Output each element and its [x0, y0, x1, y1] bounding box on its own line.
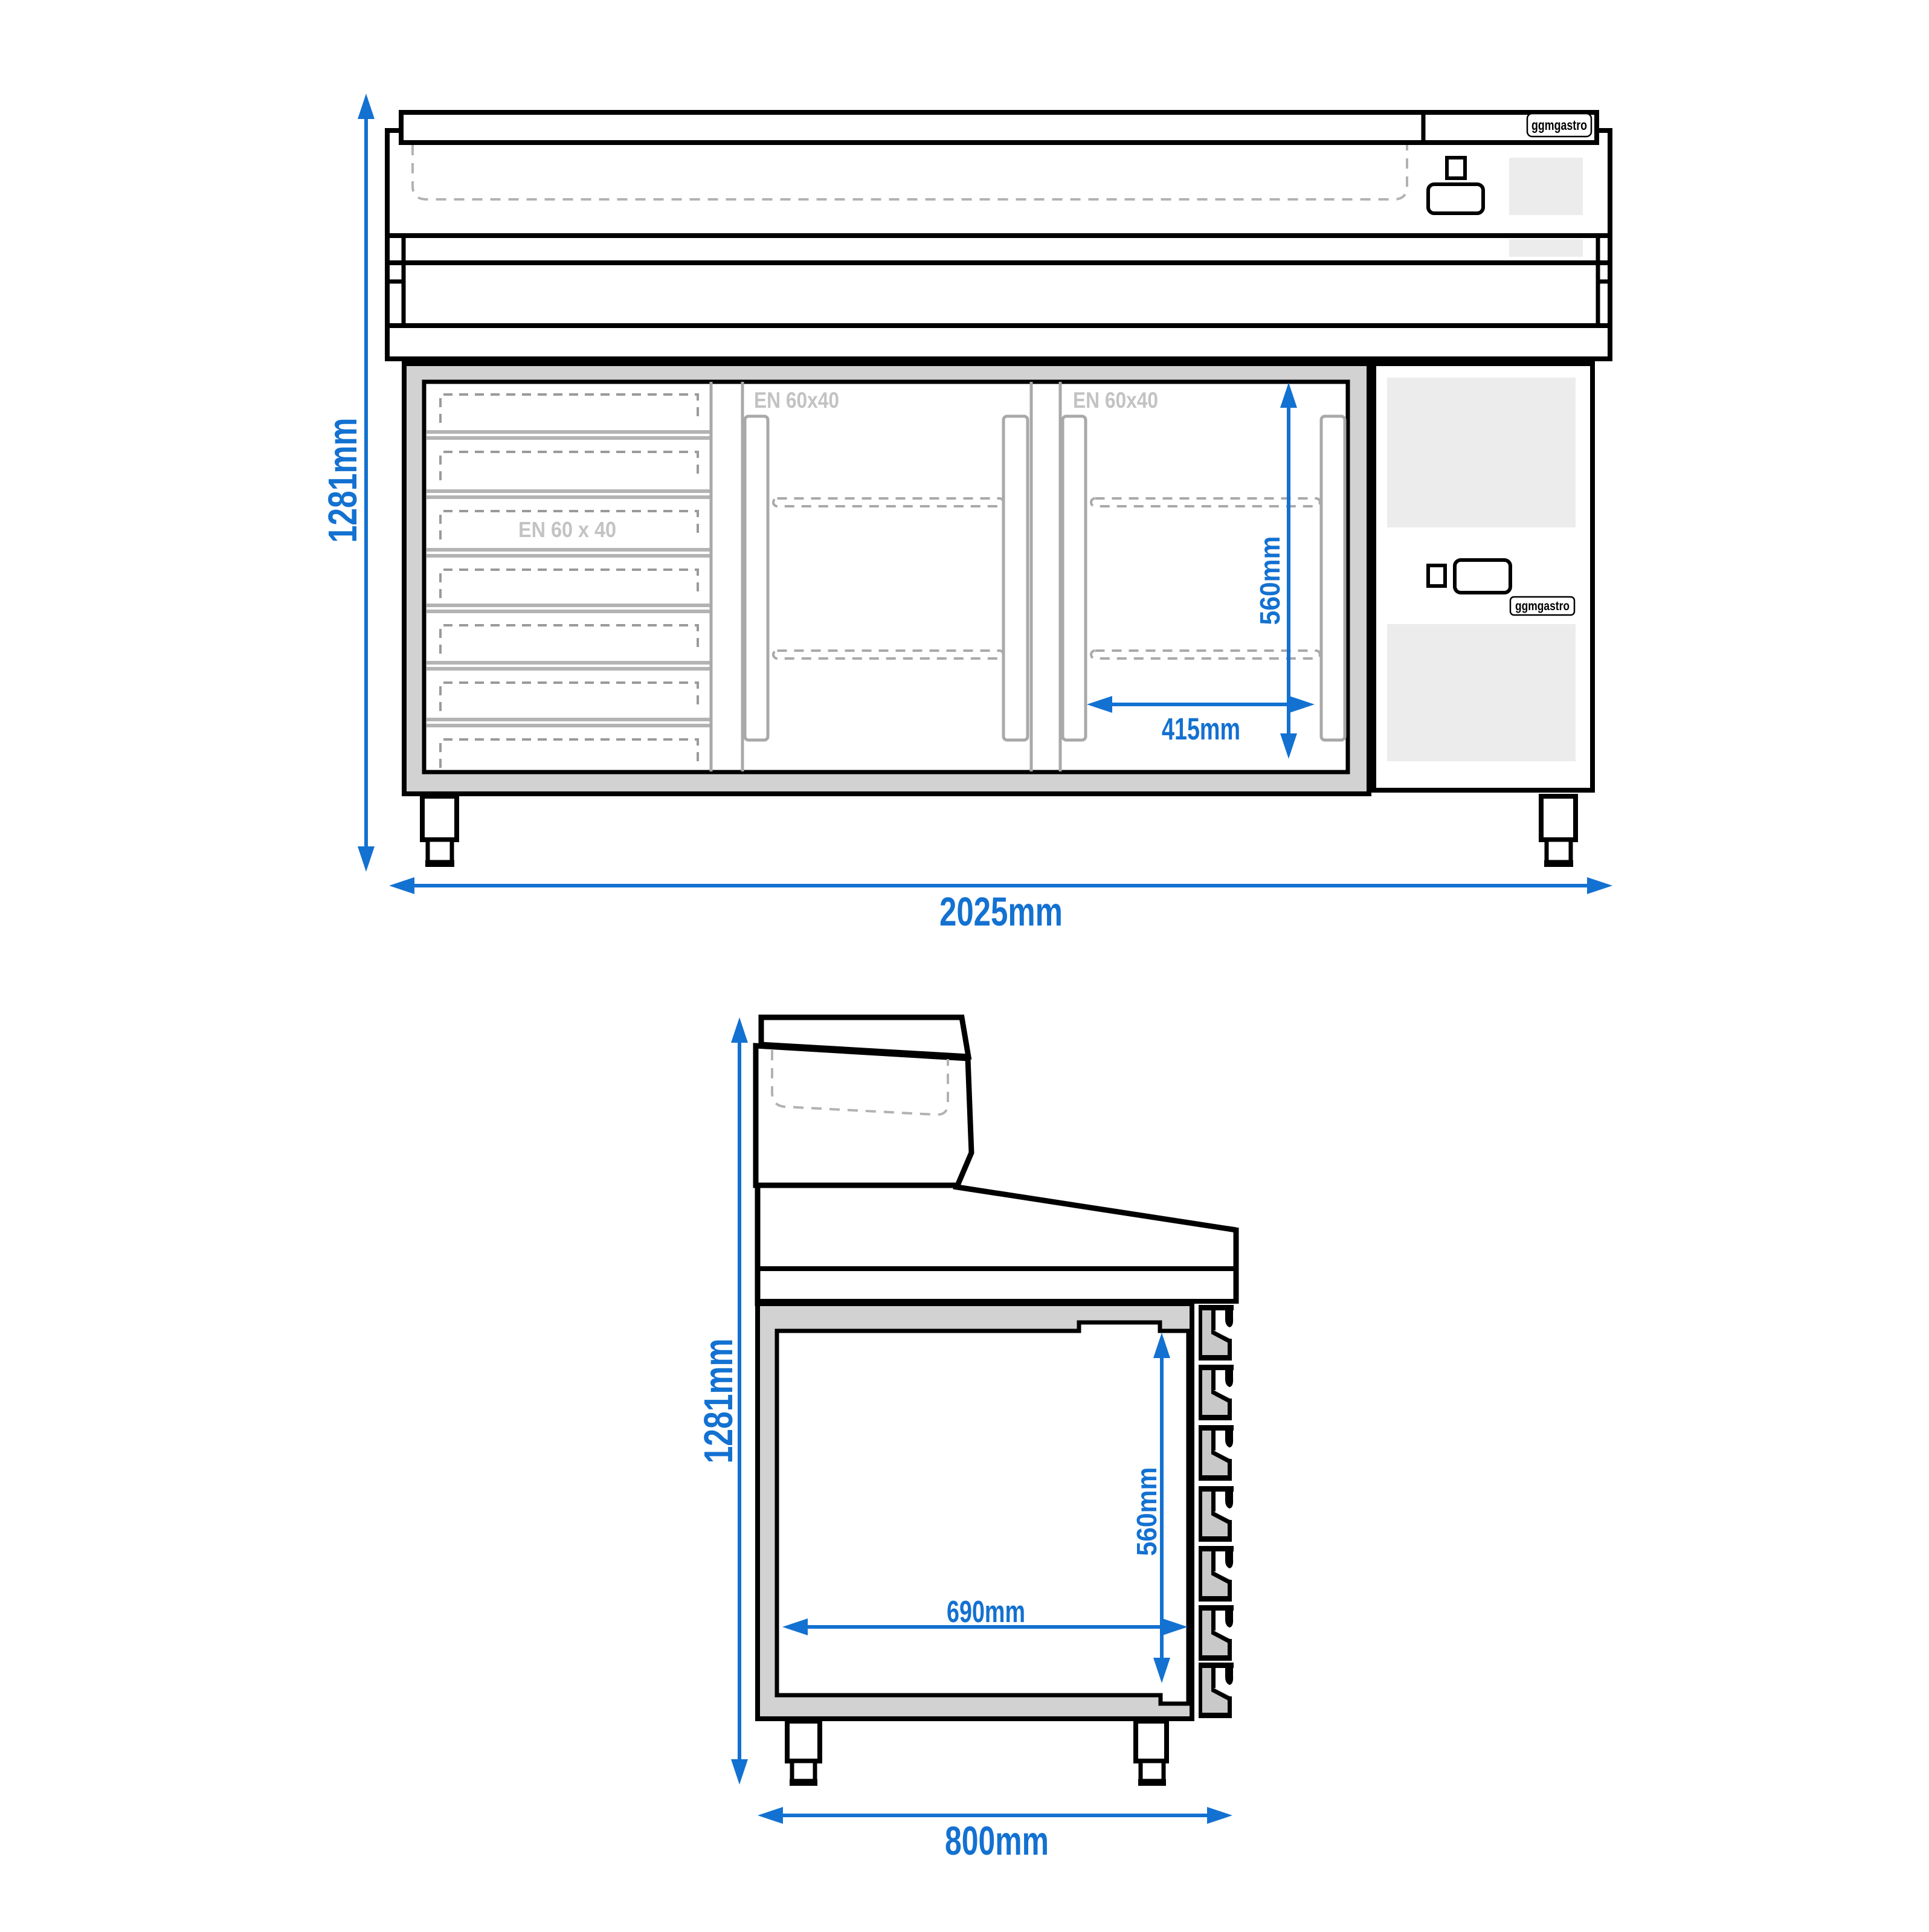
svg-text:EN 60x40: EN 60x40 — [1073, 388, 1158, 413]
svg-text:EN 60 x 40: EN 60 x 40 — [518, 517, 616, 542]
svg-text:690mm: 690mm — [947, 1594, 1025, 1629]
svg-text:ggmgastro: ggmgastro — [1515, 599, 1570, 613]
svg-text:560mm: 560mm — [1254, 536, 1286, 625]
svg-text:800mm: 800mm — [945, 1818, 1049, 1864]
svg-text:1281mm: 1281mm — [320, 418, 366, 543]
svg-text:1281mm: 1281mm — [696, 1339, 741, 1464]
svg-text:EN 60x40: EN 60x40 — [754, 388, 839, 413]
svg-text:560mm: 560mm — [1131, 1467, 1162, 1556]
svg-text:2025mm: 2025mm — [939, 889, 1063, 935]
svg-text:415mm: 415mm — [1162, 712, 1240, 746]
svg-text:ggmgastro: ggmgastro — [1531, 117, 1587, 133]
